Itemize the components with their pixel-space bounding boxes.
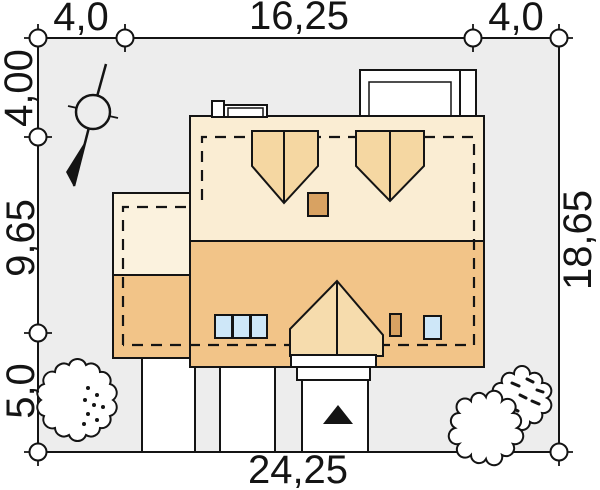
skylight-window xyxy=(251,315,267,338)
dim-label-top-left: 4,0 xyxy=(53,0,109,37)
plan-canvas xyxy=(0,0,600,490)
dim-marker xyxy=(30,30,47,47)
skylight-window xyxy=(233,315,250,338)
garage-roof xyxy=(113,193,190,358)
skylight-window xyxy=(424,316,441,339)
dim-label-left-bottom: 5,0 xyxy=(1,363,41,419)
site-plan-drawing: 4,0 16,25 4,0 4,00 9,65 5,0 18,65 24,25 xyxy=(0,0,600,490)
dim-label-right: 18,65 xyxy=(558,190,598,290)
dim-marker xyxy=(30,444,47,461)
main-roof-upper-slope xyxy=(190,116,484,241)
garage-roof-upper-slope xyxy=(113,193,190,275)
roof-terrace xyxy=(360,70,476,116)
dim-marker xyxy=(117,30,134,47)
skylight-window xyxy=(215,315,232,338)
dim-marker xyxy=(465,30,482,47)
garage-driveway xyxy=(142,356,195,452)
dim-marker xyxy=(30,325,47,342)
dim-marker xyxy=(30,129,47,146)
dim-marker xyxy=(551,444,568,461)
dim-label-left-top: 4,00 xyxy=(0,49,39,127)
dim-label-top-right: 4,0 xyxy=(488,0,544,37)
dim-marker xyxy=(551,30,568,47)
dim-label-left-mid: 9,65 xyxy=(1,199,41,277)
dim-label-top-mid: 16,25 xyxy=(249,0,349,36)
entrance-steps xyxy=(291,355,376,380)
dim-label-bottom: 24,25 xyxy=(248,450,348,490)
chimney-block-upper xyxy=(308,193,328,216)
terrace-path xyxy=(220,365,275,452)
chimney-block-lower xyxy=(390,314,401,336)
